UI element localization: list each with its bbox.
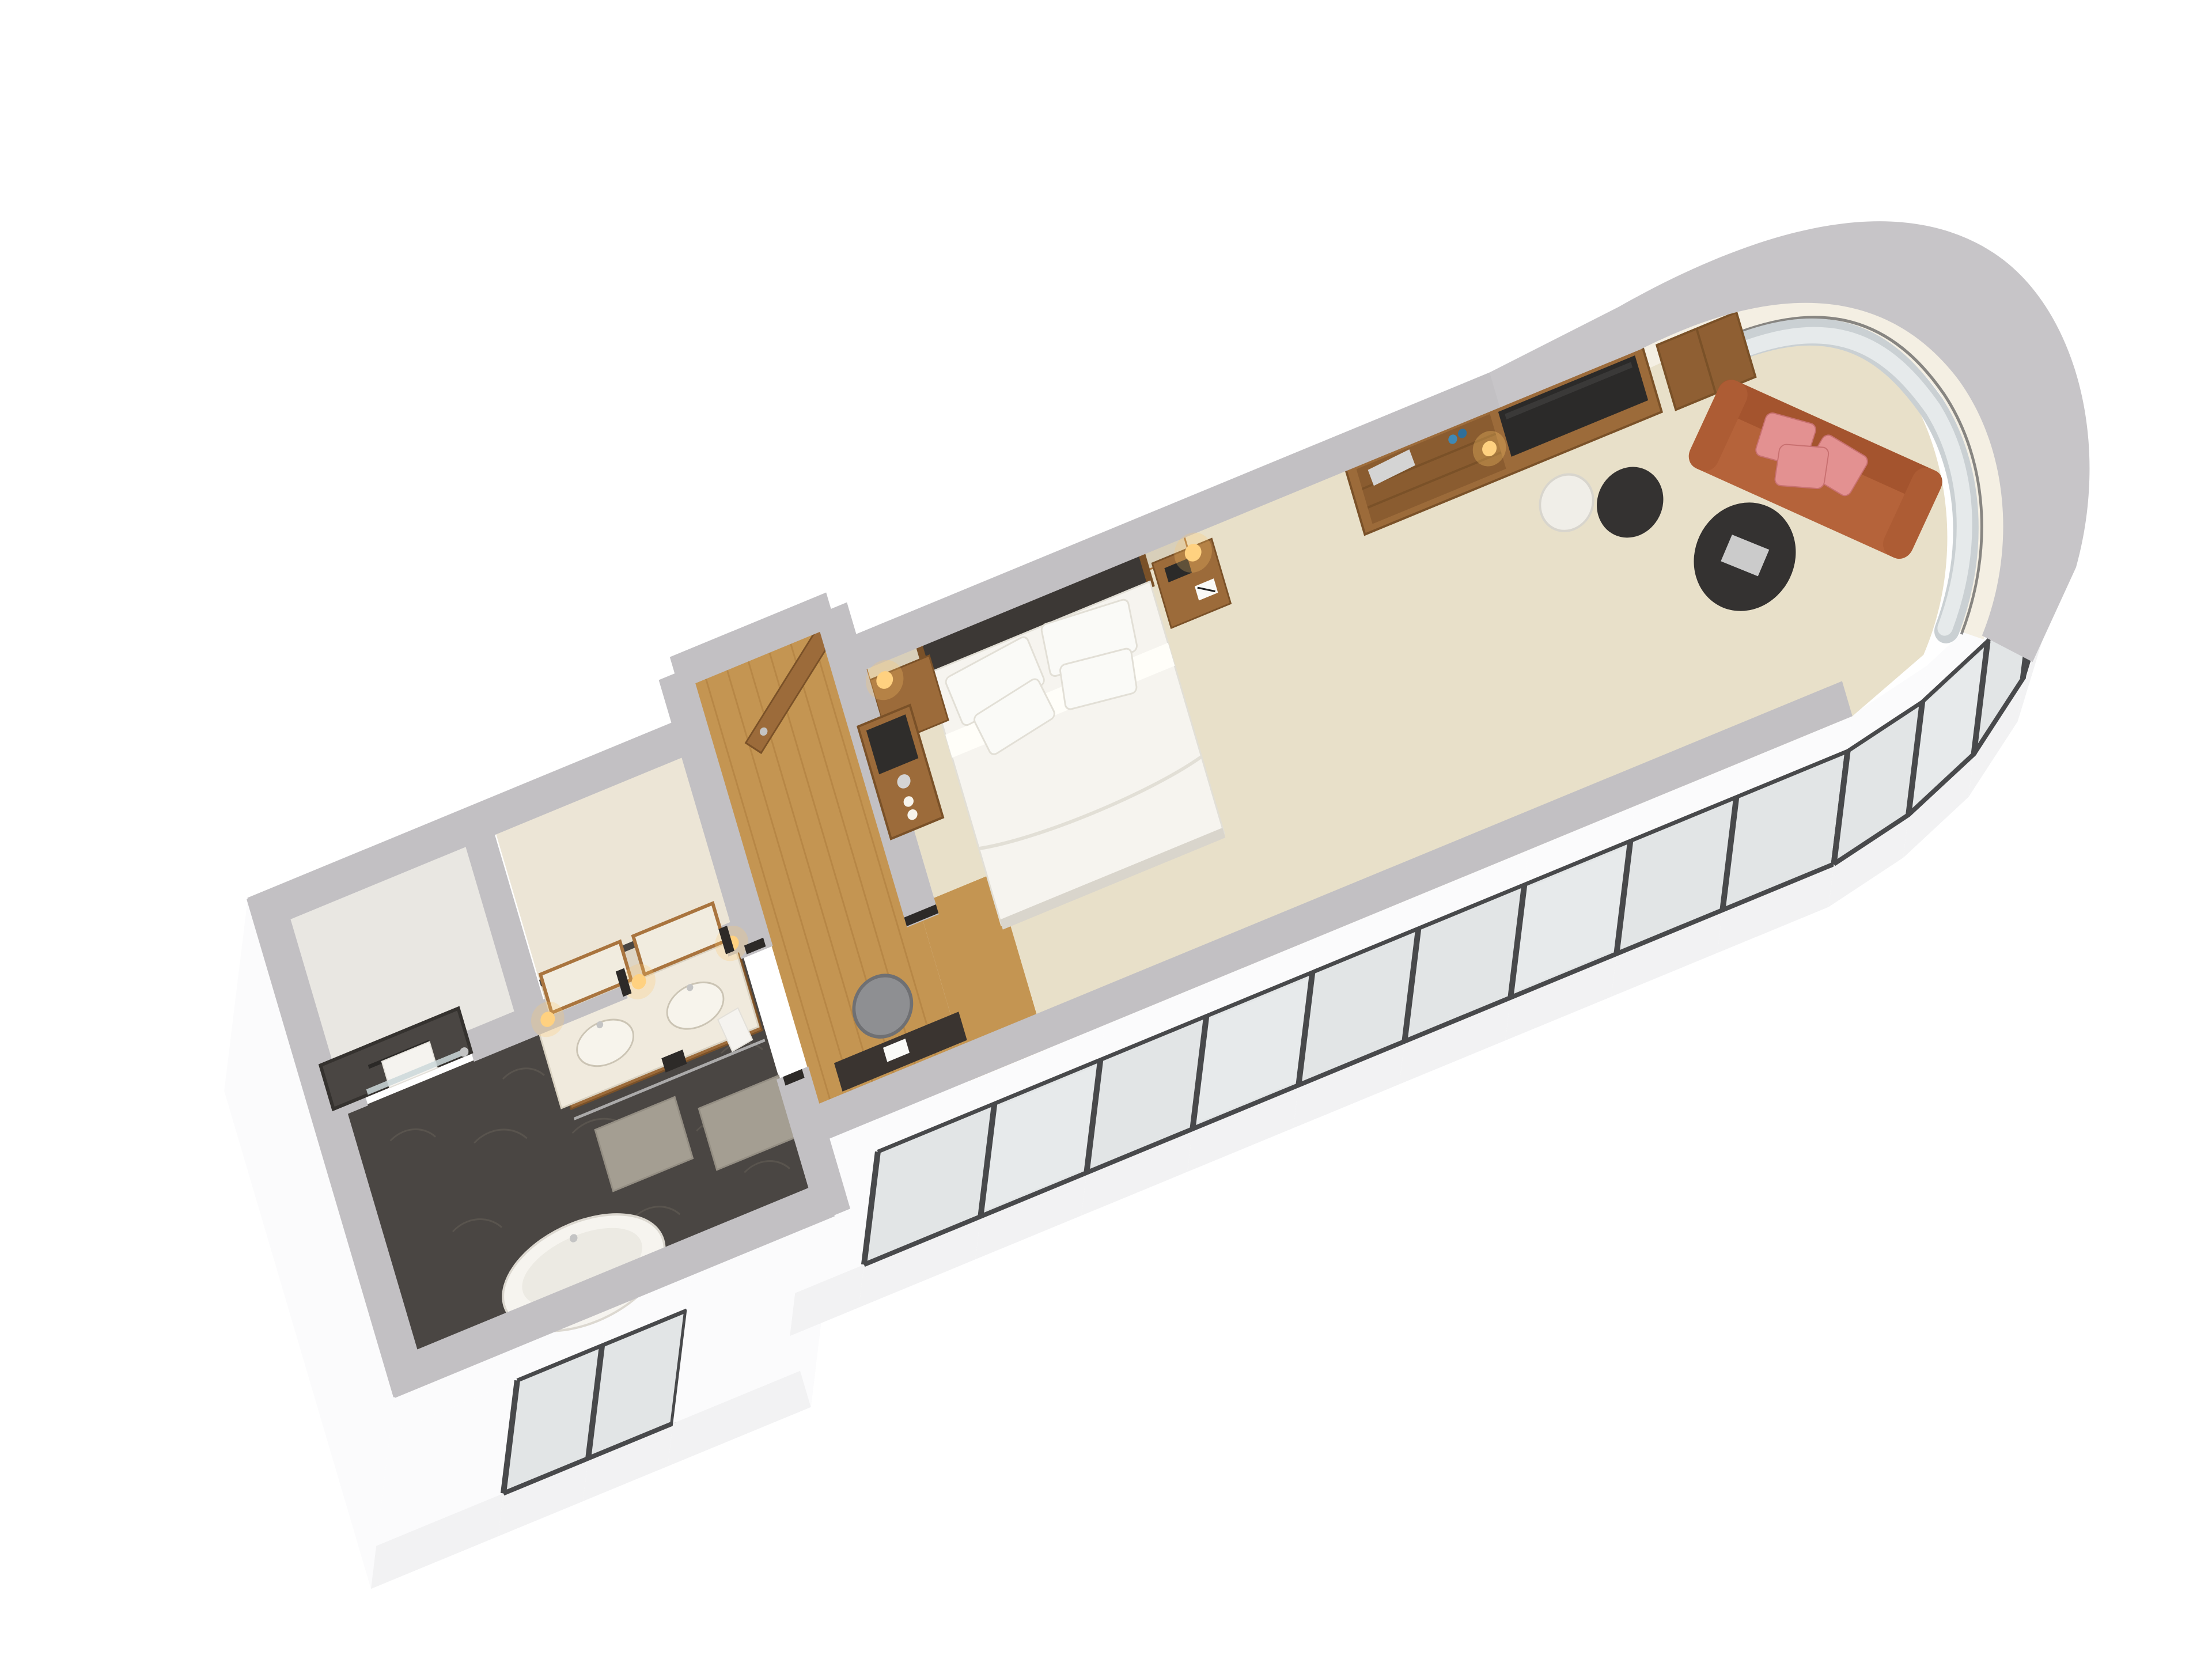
hotel-suite-3d-floorplan — [0, 0, 2212, 1659]
floorplan-canvas — [0, 0, 2212, 1659]
sofa-throw-pillow — [1774, 444, 1830, 489]
